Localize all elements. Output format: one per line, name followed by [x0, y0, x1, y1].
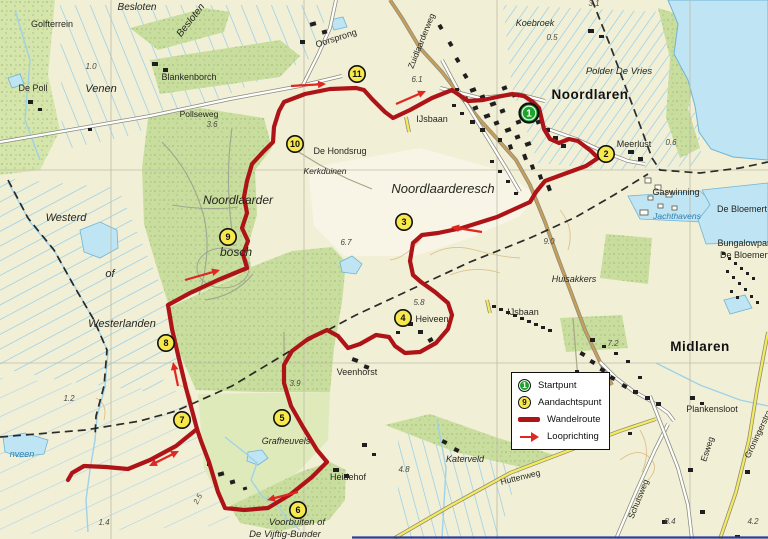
building	[498, 170, 502, 173]
building	[506, 180, 510, 183]
building	[746, 272, 749, 275]
map-canvas: 1234567891011GolfterreinBeslotenBesloten…	[0, 0, 768, 539]
building	[28, 100, 33, 104]
building	[460, 112, 464, 115]
map-label: 4.2	[747, 517, 759, 526]
waypoint-8: 8	[158, 335, 174, 351]
legend-item-aandachtspunt: 9 Aandachtspunt	[518, 395, 604, 410]
poi-marker-icon: 9	[518, 396, 531, 409]
building	[688, 468, 693, 472]
svg-text:9: 9	[225, 232, 230, 242]
building	[520, 317, 524, 320]
waypoint-7: 7	[174, 412, 190, 428]
map-label: Kerkduinen	[303, 166, 346, 176]
map-label: Besloten	[118, 2, 157, 13]
building	[300, 40, 305, 44]
route-line-icon	[518, 417, 540, 422]
building	[730, 290, 733, 293]
building	[628, 432, 632, 435]
map-label: Midlaren	[670, 339, 730, 354]
building	[745, 470, 750, 474]
building	[638, 376, 642, 379]
map-label: Westerlanden	[88, 318, 156, 330]
map-label: 3.1	[588, 0, 599, 8]
map-label: Huisakkers	[552, 274, 597, 284]
building	[734, 262, 737, 265]
map-label: De Bloemert	[720, 250, 768, 260]
svg-text:1: 1	[526, 108, 532, 119]
legend-label-looprichting: Looprichting	[547, 431, 599, 442]
waypoint-9: 9	[220, 229, 236, 245]
building	[738, 282, 741, 285]
map-label: Noordlaren	[551, 87, 628, 102]
legend-label-aandachtspunt: Aandachtspunt	[538, 397, 601, 408]
map-label: Plankensloot	[686, 404, 738, 414]
building	[736, 296, 739, 299]
legend-label-wandelroute: Wandelroute	[547, 414, 601, 425]
waypoint-3: 3	[396, 214, 412, 230]
map-label: 3.9	[289, 379, 301, 388]
building	[561, 144, 566, 148]
building	[588, 29, 594, 33]
building	[602, 345, 606, 348]
map-label: Koebroek	[516, 18, 555, 28]
legend-item-startpunt: 1 Startpunt	[518, 378, 604, 393]
building	[590, 338, 595, 342]
svg-text:8: 8	[163, 338, 168, 348]
map-label: Venen	[85, 83, 116, 95]
svg-text:2: 2	[603, 149, 608, 159]
map-label: Heiveen	[415, 314, 448, 324]
map-label: 1.2	[63, 394, 75, 403]
building	[599, 35, 604, 38]
building	[626, 360, 630, 363]
waypoint-11: 11	[349, 66, 365, 82]
map-label: 1.4	[98, 518, 110, 527]
map-label: 0.6	[665, 138, 677, 147]
waypoint-4: 4	[395, 310, 411, 326]
building	[88, 128, 92, 131]
map-label: Meerlust	[617, 139, 652, 149]
map-label: 7.2	[607, 339, 619, 348]
building	[514, 192, 518, 195]
svg-text:5: 5	[279, 413, 284, 423]
map-label: 1.0	[85, 62, 97, 71]
waypoint-2: 2	[598, 146, 614, 162]
map-label: IJsbaan	[416, 114, 448, 124]
legend-item-wandelroute: Wandelroute	[518, 412, 604, 427]
svg-text:7: 7	[179, 415, 184, 425]
building	[740, 267, 743, 270]
map-label: De Hondsrug	[313, 146, 366, 156]
building	[418, 330, 423, 334]
building	[614, 352, 618, 355]
building	[492, 305, 496, 308]
building	[700, 510, 705, 514]
map-legend: 1 Startpunt 9 Aandachtspunt Wandelroute …	[511, 372, 610, 450]
map-label: 4.8	[398, 465, 410, 474]
map-label: 0.5	[546, 33, 558, 42]
topographic-map: 1234567891011GolfterreinBeslotenBesloten…	[0, 0, 768, 539]
map-label: Katerveld	[446, 454, 485, 464]
map-label: Bungalowpark	[717, 238, 768, 248]
map-label: 9.0	[543, 237, 555, 246]
building	[480, 128, 485, 132]
direction-arrow-icon	[518, 432, 540, 442]
building	[452, 104, 456, 107]
building	[396, 331, 400, 334]
building	[470, 120, 475, 124]
map-label: 8.4	[664, 517, 676, 526]
map-label: De Bloemert	[717, 204, 768, 214]
waypoint-6: 6	[290, 502, 306, 518]
building	[362, 443, 367, 447]
waypoint-10: 10	[287, 136, 303, 152]
svg-text:10: 10	[290, 139, 300, 149]
building	[638, 157, 643, 161]
building	[726, 270, 729, 273]
map-label: Jachthavens	[652, 211, 701, 221]
map-label: 6.7	[340, 238, 352, 247]
map-label: 6.1	[411, 75, 422, 84]
building	[498, 138, 502, 142]
map-label: De Vijftig-Bunder	[249, 529, 321, 539]
map-label: Pollseweg	[180, 109, 219, 119]
svg-text:4: 4	[400, 313, 405, 323]
map-label: Noordlaarder	[203, 193, 274, 207]
map-label: Voorbulten of	[269, 517, 327, 528]
building	[752, 277, 755, 280]
map-label: Blankenborch	[161, 72, 216, 82]
building	[633, 390, 638, 394]
map-label: of	[105, 268, 115, 280]
building	[756, 301, 759, 304]
start-marker-1: 1	[520, 104, 539, 123]
building	[750, 295, 753, 298]
svg-text:3: 3	[401, 217, 406, 227]
building	[499, 308, 503, 311]
map-label: Polder De Vries	[586, 66, 653, 77]
building	[534, 323, 538, 326]
map-label: Gaswinning	[652, 187, 699, 197]
map-label: 3.6	[206, 120, 218, 129]
building	[152, 62, 158, 66]
building	[38, 108, 42, 111]
map-label: IJsbaan	[507, 307, 539, 317]
building	[645, 178, 651, 183]
building	[640, 210, 648, 215]
svg-text:11: 11	[352, 69, 362, 79]
building	[645, 396, 650, 400]
building	[690, 396, 695, 400]
building	[672, 206, 677, 210]
map-label: De Poll	[18, 83, 47, 93]
building	[541, 326, 545, 329]
map-label: bosch	[220, 245, 252, 259]
building	[732, 276, 735, 279]
building	[656, 402, 661, 406]
map-label: Golfterrein	[31, 19, 73, 29]
start-marker-icon: 1	[518, 379, 531, 392]
building	[548, 329, 552, 332]
map-label: Heidehof	[330, 472, 367, 482]
map-label: 5.8	[413, 298, 425, 307]
map-label: nveen	[10, 449, 35, 459]
map-label: Noordlaarderesch	[391, 181, 494, 196]
building	[490, 160, 494, 163]
map-label: Veenhorst	[337, 367, 378, 377]
building	[658, 204, 663, 208]
building	[628, 150, 634, 154]
map-label: Westerd	[46, 212, 88, 224]
map-label: Grafheuvels	[262, 436, 311, 446]
building	[527, 320, 531, 323]
svg-text:6: 6	[295, 505, 300, 515]
legend-item-looprichting: Looprichting	[518, 429, 604, 444]
building	[744, 288, 747, 291]
building	[372, 453, 376, 456]
waypoint-5: 5	[274, 410, 290, 426]
legend-label-startpunt: Startpunt	[538, 380, 577, 391]
